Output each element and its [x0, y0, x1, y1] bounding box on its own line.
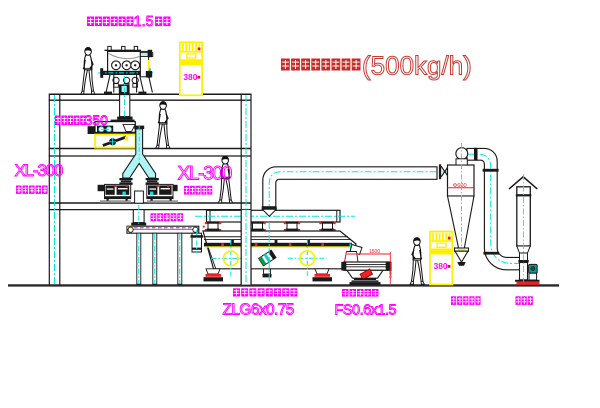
svg-text:XL-300: XL-300 [15, 161, 63, 180]
svg-text:1500: 1500 [369, 249, 380, 255]
svg-text:Φ600: Φ600 [453, 183, 467, 189]
svg-text:(500kg/h): (500kg/h) [362, 51, 472, 81]
svg-text:350: 350 [85, 112, 109, 128]
svg-text:548: 548 [388, 270, 393, 278]
svg-text:XL-300: XL-300 [178, 164, 232, 185]
svg-text:1.5: 1.5 [134, 14, 154, 30]
svg-text:ZLG6x0.75: ZLG6x0.75 [223, 302, 294, 319]
svg-text:FS0.6x1.5: FS0.6x1.5 [335, 303, 397, 319]
